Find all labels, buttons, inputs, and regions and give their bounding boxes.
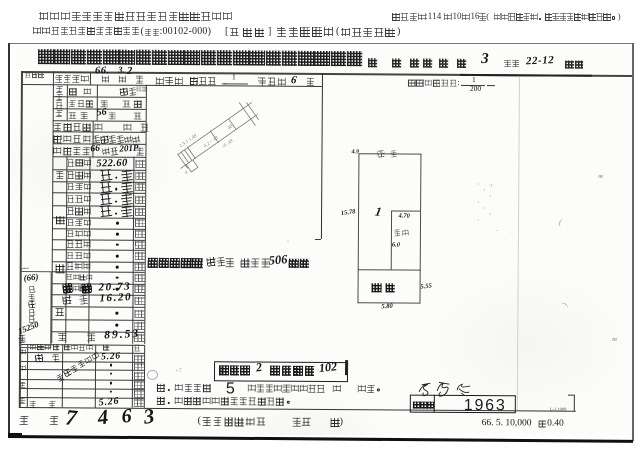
svg-text:4: 4 xyxy=(184,170,189,176)
svg-text:~6 .48: ~6 .48 xyxy=(221,139,235,151)
